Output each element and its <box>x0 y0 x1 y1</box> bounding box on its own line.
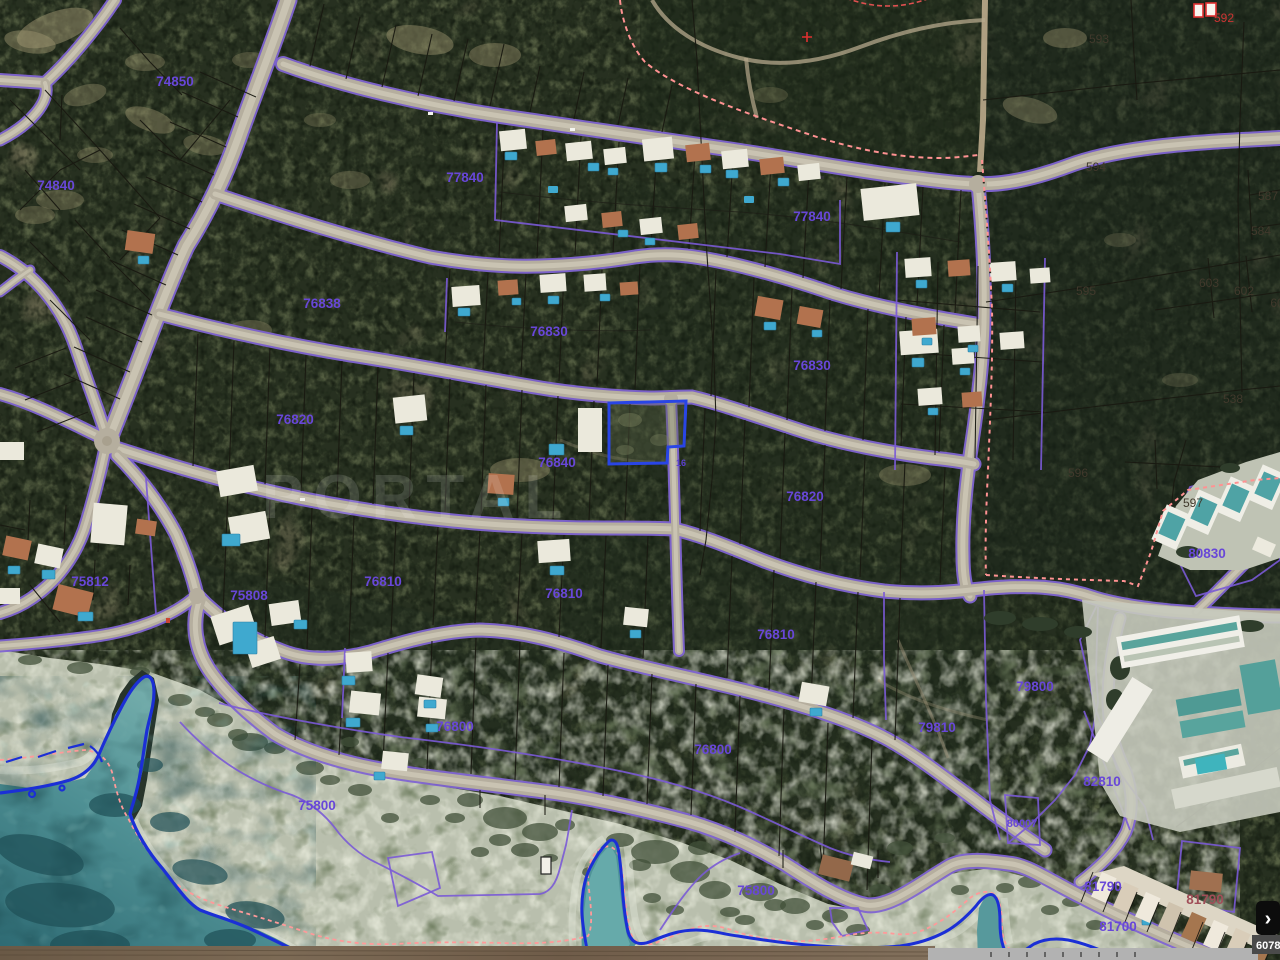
svg-text:595: 595 <box>1076 284 1096 298</box>
svg-text:76830: 76830 <box>793 358 831 373</box>
svg-text:76838: 76838 <box>303 296 341 311</box>
svg-text:593: 593 <box>1089 32 1109 46</box>
svg-text:77840: 77840 <box>793 209 831 224</box>
svg-text:76810: 76810 <box>364 574 402 589</box>
svg-text:6078: 6078 <box>1256 940 1280 952</box>
svg-text:76830: 76830 <box>530 324 568 339</box>
svg-text:PORTAL: PORTAL <box>262 463 572 532</box>
svg-text:16: 16 <box>676 458 686 468</box>
svg-text:76810: 76810 <box>545 586 583 601</box>
svg-text:75808: 75808 <box>230 588 268 603</box>
svg-text:76820: 76820 <box>276 412 314 427</box>
svg-text:76800: 76800 <box>694 742 732 757</box>
svg-text:596: 596 <box>1068 466 1088 480</box>
svg-text:602: 602 <box>1234 284 1254 298</box>
svg-text:82810: 82810 <box>1083 774 1121 789</box>
svg-text:79810: 79810 <box>918 720 956 735</box>
svg-text:81700: 81700 <box>1099 919 1137 934</box>
svg-text:75800: 75800 <box>298 798 336 813</box>
svg-text:79800: 79800 <box>1016 679 1054 694</box>
svg-text:603: 603 <box>1199 276 1219 290</box>
svg-text:76820: 76820 <box>786 489 824 504</box>
svg-text:80830: 80830 <box>1188 546 1226 561</box>
svg-text:592: 592 <box>1214 11 1234 25</box>
svg-text:76800: 76800 <box>436 719 474 734</box>
svg-text:77840: 77840 <box>446 170 484 185</box>
svg-text:75812: 75812 <box>71 574 109 589</box>
svg-text:80007: 80007 <box>1007 818 1038 830</box>
svg-text:587: 587 <box>1258 189 1278 203</box>
svg-text:538: 538 <box>1223 392 1243 406</box>
svg-text:594: 594 <box>1086 160 1106 174</box>
svg-text:81790: 81790 <box>1186 892 1224 907</box>
svg-text:76810: 76810 <box>757 627 795 642</box>
svg-text:74840: 74840 <box>37 178 75 193</box>
svg-text:60: 60 <box>1270 296 1280 310</box>
svg-text:76840: 76840 <box>538 455 576 470</box>
svg-text:584: 584 <box>1251 224 1271 238</box>
svg-text:›: › <box>1265 908 1272 930</box>
svg-text:74850: 74850 <box>156 74 194 89</box>
svg-text:597: 597 <box>1183 496 1203 510</box>
svg-text:75800: 75800 <box>737 883 775 898</box>
svg-text:81790: 81790 <box>1084 879 1122 894</box>
